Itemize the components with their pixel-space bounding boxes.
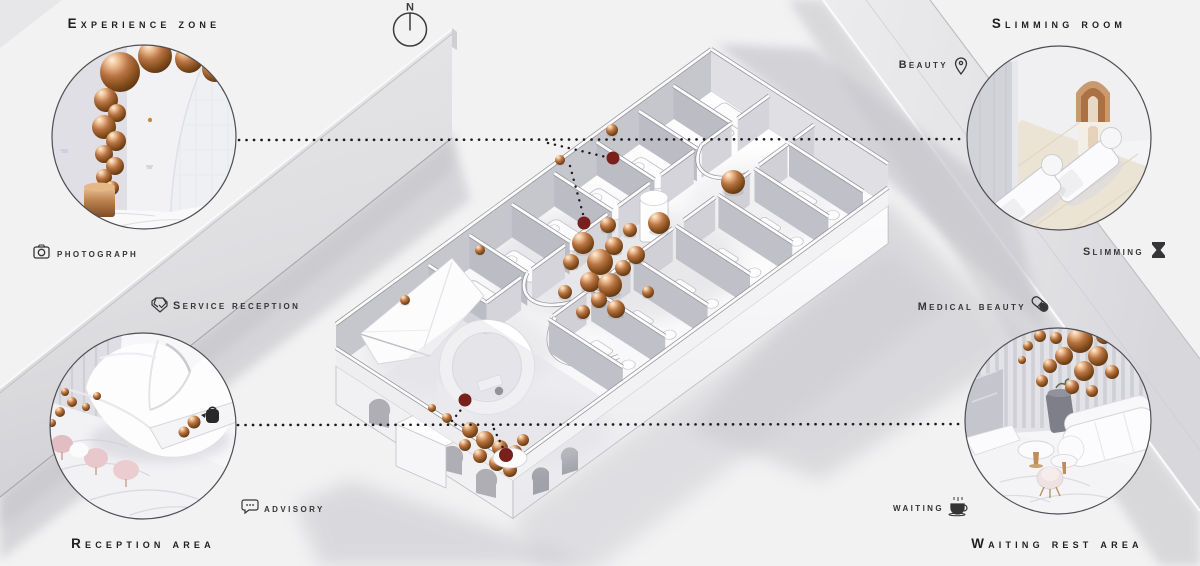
svg-text:Waiting rest area: Waiting rest area [971, 536, 1142, 551]
svg-text:photograph: photograph [57, 248, 138, 260]
svg-text:advisory: advisory [264, 503, 325, 515]
svg-text:Medical beauty: Medical beauty [918, 301, 1026, 313]
svg-text:Slimming room: Slimming room [992, 16, 1126, 31]
svg-text:waiting: waiting [893, 502, 944, 514]
svg-text:Service reception: Service reception [173, 300, 300, 312]
svg-text:N: N [406, 2, 414, 14]
svg-text:Slimming: Slimming [1083, 246, 1144, 258]
svg-text:Reception area: Reception area [71, 536, 215, 551]
svg-text:Experience zone: Experience zone [68, 16, 221, 31]
svg-text:Beauty: Beauty [899, 59, 948, 71]
